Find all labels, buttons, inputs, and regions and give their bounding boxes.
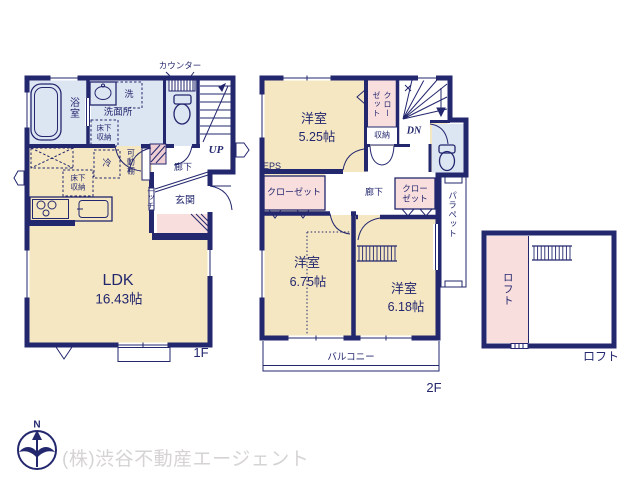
label-ldk-size: 16.43帖 — [95, 293, 142, 308]
label-niche: ニッチ — [146, 185, 154, 211]
label-closet-top: クローゼット — [371, 89, 393, 119]
label-compass-north: N — [33, 420, 40, 431]
door-marker-bottom — [56, 347, 72, 359]
label-bedroom3-name: 洋室 — [391, 282, 417, 296]
label-hallway-1f: 廊下 — [174, 163, 192, 173]
label-parapet: パラペット — [447, 190, 456, 240]
label-entrance: 玄関 — [175, 196, 195, 207]
plan-graphics — [0, 0, 640, 480]
label-stairs-up: UP — [209, 144, 224, 156]
floorplan-canvas: カウンター 浴室 洗 洗面所 床下収納 冷 可動棚 床下収納 廊下 UP ニッチ… — [0, 0, 640, 480]
label-bedroom2-name: 洋室 — [294, 256, 320, 270]
label-floor1: 1F — [193, 346, 208, 360]
label-washer: 洗 — [124, 90, 133, 100]
label-bedroom2-size: 6.75帖 — [290, 276, 327, 290]
company-name: (株)渋谷不動産エージェント — [62, 450, 309, 471]
label-movable-shelf: 可動棚 — [126, 149, 135, 176]
loft-ladder-bedroom3 — [357, 246, 397, 261]
label-stairs-down: DN — [407, 126, 421, 137]
label-ldk-name: LDK — [102, 272, 133, 290]
loft-ladder — [532, 246, 572, 260]
loft-hatch — [511, 344, 528, 349]
door-marker-right — [236, 143, 249, 157]
compass-icon — [18, 430, 56, 469]
label-storage-2f: 収納 — [374, 132, 390, 141]
floor2-plan — [260, 76, 467, 372]
porch-step — [118, 348, 170, 362]
room-toilet-2f — [432, 124, 464, 173]
label-fridge: 冷 — [102, 159, 111, 169]
toilet-counter — [169, 80, 195, 91]
label-bath: 浴室 — [68, 94, 79, 122]
front-door-arc — [210, 186, 232, 210]
label-counter: カウンター — [159, 61, 202, 70]
label-washroom: 洗面所 — [104, 108, 133, 118]
hallway-2f-upper — [366, 146, 430, 172]
label-loft-room: ロフト — [501, 269, 513, 309]
label-bedroom3-size: 6.18帖 — [388, 301, 425, 315]
movable-shelf-unit — [142, 148, 150, 180]
label-underfloor-storage-kitchen: 床下収納 — [70, 175, 87, 192]
label-bedroom1-size: 5.25帖 — [299, 131, 336, 145]
label-loft-floor: ロフト — [583, 350, 619, 363]
window-marker-left — [14, 171, 24, 185]
label-eps: EPS — [263, 162, 281, 172]
label-bedroom1-name: 洋室 — [301, 112, 327, 126]
label-hallway-2f: 廊下 — [365, 188, 383, 198]
label-closet-right: クローゼット — [402, 185, 429, 204]
label-closet-left: クローゼット — [267, 188, 321, 198]
label-balcony: バルコニー — [327, 353, 374, 363]
label-underfloor-storage-washroom: 床下収納 — [96, 125, 113, 142]
label-floor2: 2F — [426, 381, 441, 395]
